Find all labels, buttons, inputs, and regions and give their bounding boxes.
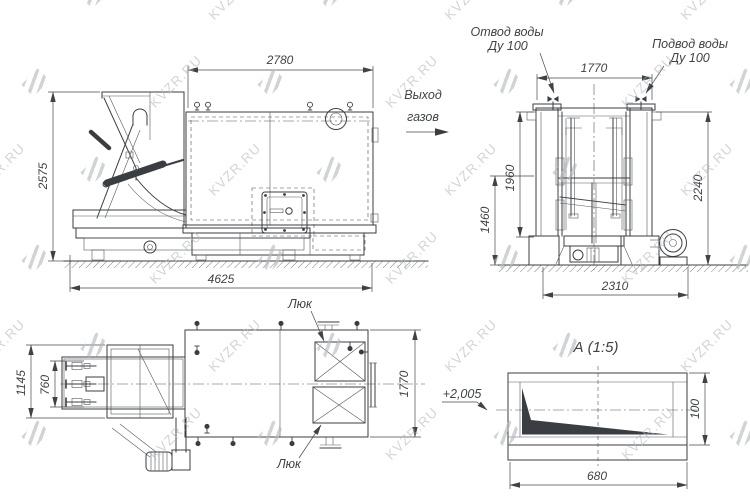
foundation-block (621, 236, 659, 265)
elevation-label: +2,005 (443, 387, 482, 401)
detail-outline (508, 373, 687, 460)
hatch-top (315, 342, 365, 381)
ground-hatch (498, 265, 748, 272)
valve-icon (194, 346, 199, 355)
valve-icon (278, 321, 283, 330)
inspection-door (252, 188, 314, 236)
hatch-label-bottom: Люк (276, 457, 302, 471)
bottom-flange-stub (320, 437, 341, 448)
gas-flow-arrow-icon (435, 128, 449, 135)
scraper-knife-profile (522, 388, 668, 435)
boiler-plan-outline (185, 330, 368, 437)
dim-2780: 2780 (266, 53, 294, 67)
dim-2310: 2310 (601, 279, 629, 293)
hatch-label-top: Люк (287, 297, 313, 311)
ground-line (64, 261, 428, 268)
valve-icon (359, 349, 368, 354)
water-outlet-callout: Отвод воды Ду 100 (470, 25, 554, 93)
water-inlet-label-line2: Ду 100 (668, 51, 710, 65)
blower-fan (650, 230, 687, 266)
motor-icon (146, 452, 172, 471)
water-outlet-label-line2: Ду 100 (486, 39, 528, 53)
front-view: Отвод воды Ду 100 Подвод воды Ду 100 177… (470, 25, 748, 299)
water-inlet-valve-icon (636, 96, 647, 102)
side-view-dimensions: 2780 2575 4625 (36, 53, 373, 292)
valve-icon (307, 102, 314, 112)
valve-icon (347, 102, 354, 112)
pusher-rods (66, 362, 96, 406)
valve-icon (289, 437, 294, 446)
valve-icon (194, 102, 201, 112)
dim-100: 100 (688, 399, 702, 419)
gas-outlet-label-line2: газов (407, 110, 439, 124)
fuel-hopper (102, 92, 186, 225)
foundation-block (529, 236, 559, 265)
elevation-callout: +2,005 (442, 387, 487, 410)
hatch-callout-bottom: Люк (276, 425, 321, 471)
hatch-bottom (313, 387, 365, 423)
drawing-sheet: 2780 2575 4625 Выход газов (0, 0, 750, 500)
valve-icon (347, 342, 352, 351)
boiler-technical-drawing: 2780 2575 4625 Выход газов (0, 0, 750, 500)
dim-1960: 1960 (503, 164, 517, 191)
top-flange-stub (318, 322, 339, 330)
dim-2575: 2575 (36, 162, 50, 190)
dim-680: 680 (587, 469, 607, 483)
side-bracket (369, 363, 377, 407)
plan-view: 1145 760 1770 Люк Люк (14, 297, 425, 471)
feeder-plan (62, 345, 190, 471)
water-inlet-callout: Подвод воды Ду 100 (646, 37, 728, 93)
dim-1770-front: 1770 (581, 61, 608, 75)
valve-icon (195, 437, 200, 446)
base-frame (183, 225, 376, 260)
detail-a: А (1:5) 100 680 +2,005 (442, 339, 710, 489)
valve-icon (194, 321, 199, 330)
side-view: 2780 2575 4625 (36, 53, 428, 292)
valve-icon (354, 321, 359, 330)
boiler-tank (186, 109, 378, 226)
dim-2240: 2240 (691, 174, 705, 202)
dim-760: 760 (38, 375, 52, 395)
valve-icon (230, 437, 235, 446)
hatch-callout-top: Люк (287, 297, 324, 341)
detail-title: А (1:5) (572, 339, 618, 356)
dim-1145: 1145 (14, 370, 28, 396)
dim-1460: 1460 (478, 206, 492, 233)
water-outlet-valve-icon (548, 96, 559, 102)
hopper-mark (133, 109, 147, 125)
dim-4625: 4625 (208, 272, 235, 286)
water-outlet-label-line1: Отвод воды (470, 25, 543, 39)
valve-icon (204, 424, 209, 433)
valve-icon (205, 102, 212, 112)
gas-outlet-note: Выход газов (404, 88, 449, 136)
dim-1770-plan: 1770 (397, 370, 411, 397)
front-view-dimensions: 1770 1960 1460 2240 2310 (478, 61, 712, 299)
feeder-handle (91, 132, 109, 148)
gas-outlet-label-line1: Выход (404, 88, 442, 102)
water-inlet-label-line1: Подвод воды (652, 37, 728, 51)
